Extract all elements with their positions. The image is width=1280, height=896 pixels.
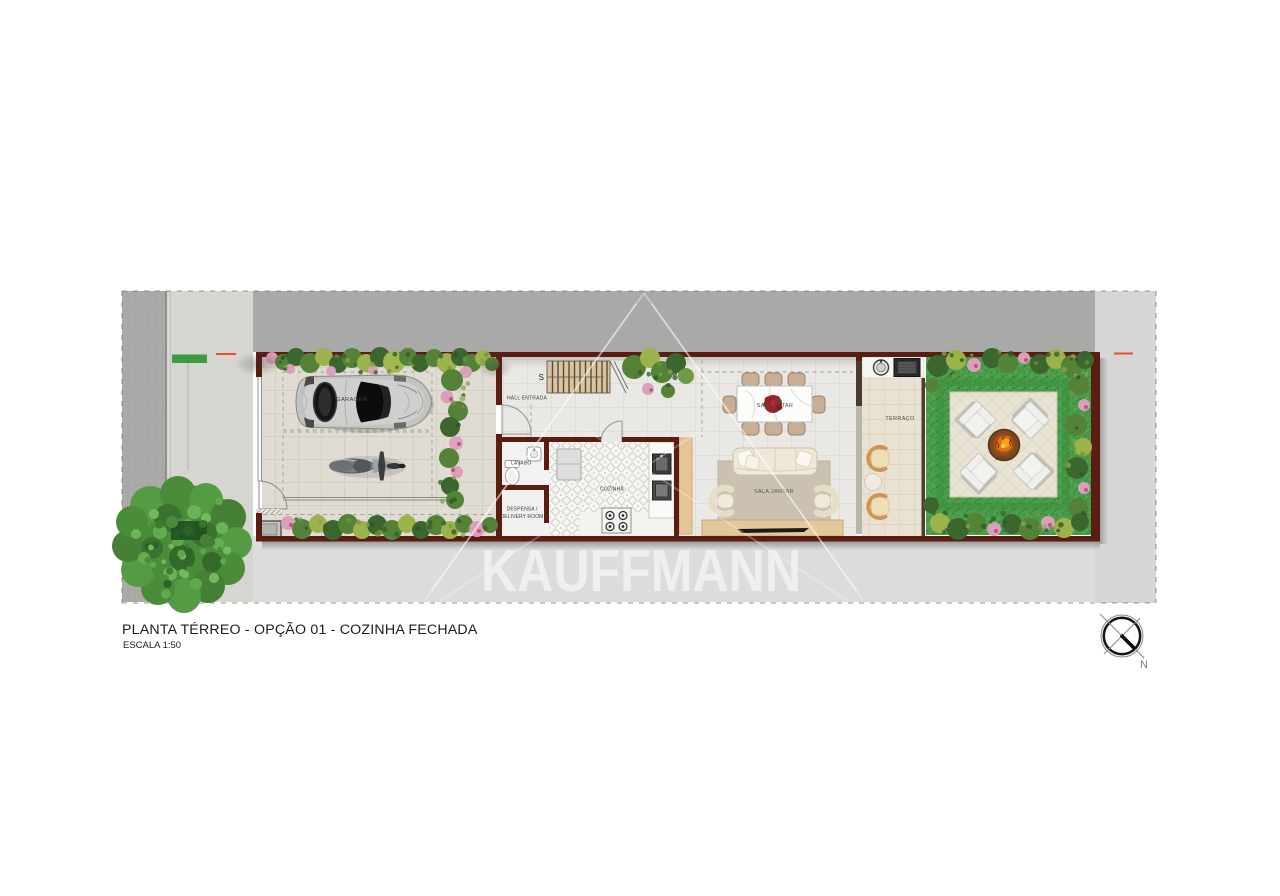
svg-text:JARDIM: JARDIM xyxy=(995,456,1012,461)
svg-text:LAVABO: LAVABO xyxy=(511,461,531,467)
svg-text:ESCALA 1:50: ESCALA 1:50 xyxy=(123,640,181,651)
svg-text:HALL ENTRADA: HALL ENTRADA xyxy=(507,396,547,402)
svg-text:N: N xyxy=(1140,659,1148,671)
svg-text:TERRAÇO: TERRAÇO xyxy=(885,416,914,422)
svg-text:SALA ESTAR: SALA ESTAR xyxy=(757,403,794,409)
svg-text:DELIVERY ROOM: DELIVERY ROOM xyxy=(501,514,544,520)
svg-text:PLANTA TÉRREO - OPÇÃO 01 - COZ: PLANTA TÉRREO - OPÇÃO 01 - COZINHA FECHA… xyxy=(122,621,478,638)
svg-text:COZINHA: COZINHA xyxy=(600,487,624,493)
svg-text:DESPENSA /: DESPENSA / xyxy=(507,507,538,513)
svg-text:KAUFFMANN: KAUFFMANN xyxy=(481,538,801,604)
svg-text:GARAGEM: GARAGEM xyxy=(336,397,368,403)
svg-text:S: S xyxy=(539,373,544,382)
